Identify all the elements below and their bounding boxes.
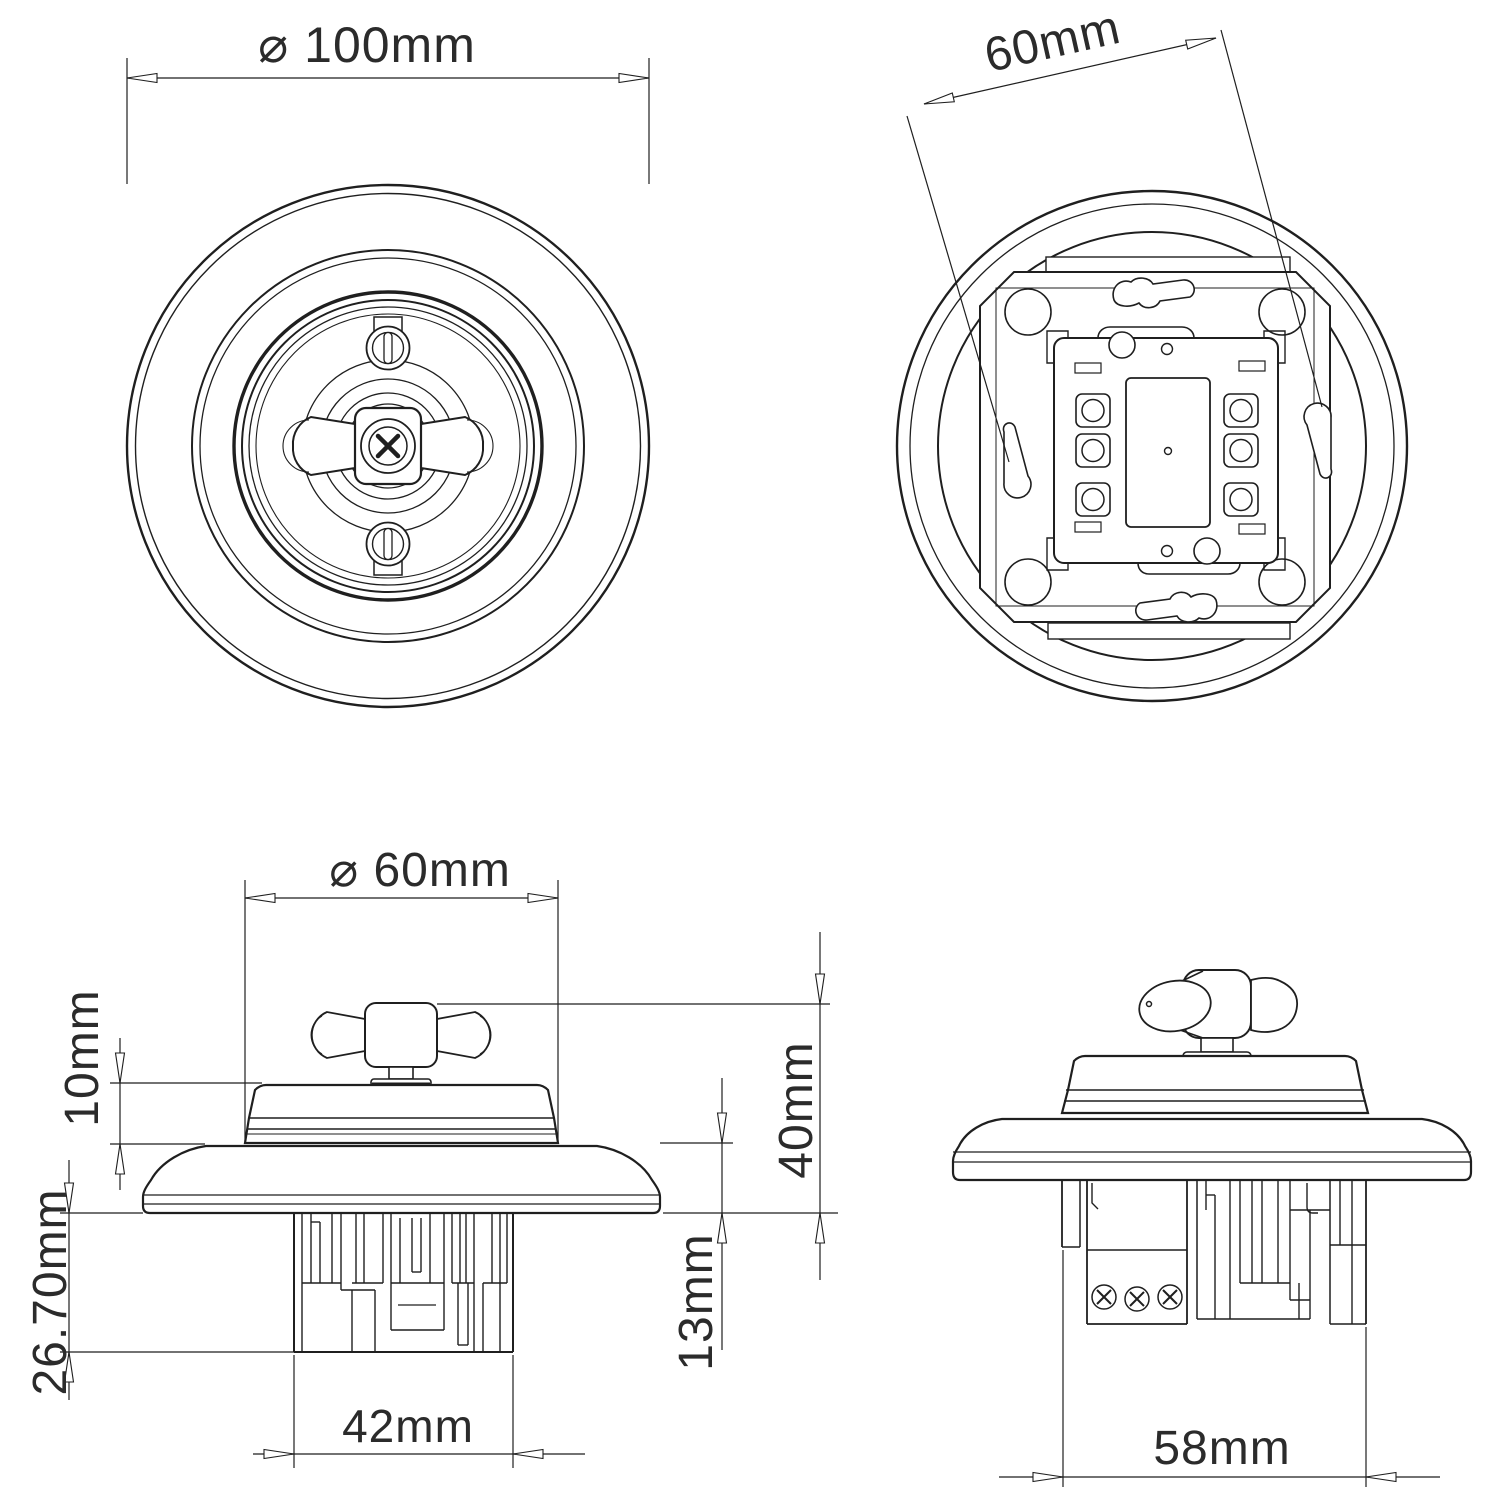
side-view-front: ⌀ 60mm 40mm 13mm 10mm: [24, 844, 838, 1468]
side-view-profile: 58mm: [953, 970, 1471, 1487]
side2-toggle-knob: [1135, 970, 1297, 1060]
side2-base-plate: [953, 1119, 1471, 1180]
front-toggle-knob: [283, 408, 493, 484]
technical-drawing-canvas: ⌀ 100mm: [0, 0, 1500, 1500]
back-view: 60mm: [897, 1, 1407, 701]
front-diameter-dimension: ⌀ 100mm: [127, 17, 649, 184]
plate-height-label: 13mm: [670, 1233, 723, 1370]
side1-toggle-knob: [311, 1003, 491, 1086]
mechanism-width-label: 42mm: [342, 1400, 474, 1452]
back-terminals-right: [1224, 394, 1258, 516]
side2-cover-dome: [1062, 1056, 1368, 1113]
side1-width-42-dimension: 42mm: [253, 1355, 585, 1468]
cover-height-label: 10mm: [56, 989, 109, 1126]
side2-terminal-screws: [1092, 1285, 1182, 1311]
recess-depth-label: 26.70mm: [24, 1188, 77, 1395]
side2-width-58-dimension: 58mm: [999, 1250, 1440, 1487]
side2-recessed-mechanism: [1062, 1180, 1366, 1324]
cover-diameter-label: ⌀ 60mm: [329, 844, 511, 897]
side1-cover-dome: [245, 1085, 558, 1143]
mechanism-width-profile-label: 58mm: [1153, 1422, 1290, 1475]
front-view: ⌀ 100mm: [127, 17, 649, 707]
front-plate-diameter-label: ⌀ 100mm: [258, 17, 476, 73]
switch-dimension-drawing: ⌀ 100mm: [0, 0, 1500, 1500]
side1-base-plate: [143, 1146, 660, 1213]
back-mechanism: [1047, 327, 1285, 574]
side1-recessed-mechanism: [294, 1213, 513, 1352]
side1-height-13-dimension: 13mm: [660, 1078, 733, 1371]
back-mounting-spacing-label: 60mm: [980, 1, 1126, 83]
overall-height-label: 40mm: [770, 1041, 823, 1178]
back-terminals-left: [1076, 394, 1110, 516]
